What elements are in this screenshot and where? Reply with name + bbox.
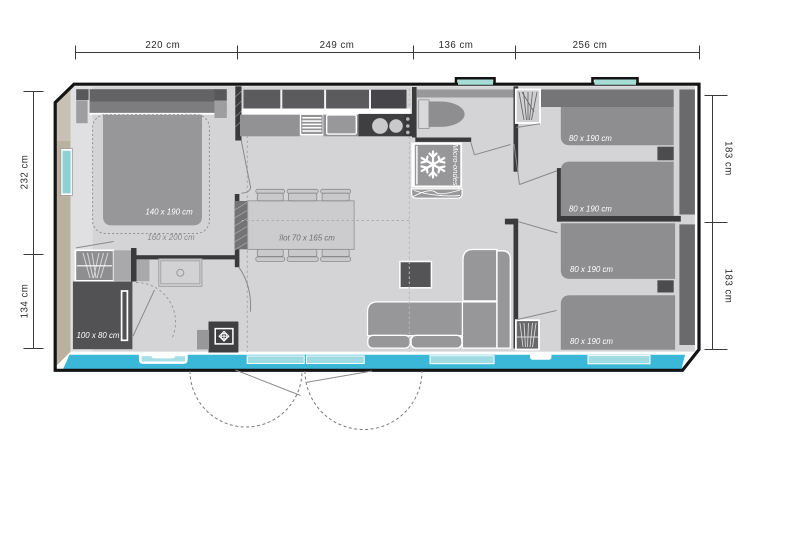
svg-text:220 cm: 220 cm — [145, 40, 180, 51]
svg-text:183 cm: 183 cm — [723, 141, 734, 176]
svg-text:183 cm: 183 cm — [723, 269, 734, 304]
svg-text:249 cm: 249 cm — [320, 40, 355, 51]
svg-text:80 x 190 cm: 80 x 190 cm — [569, 134, 612, 143]
svg-text:80 x 190 cm: 80 x 190 cm — [570, 337, 613, 346]
svg-text:Micro-ondes: Micro-ondes — [451, 144, 460, 186]
svg-text:160 x 200 cm: 160 x 200 cm — [147, 233, 195, 242]
svg-text:140 x 190 cm: 140 x 190 cm — [145, 208, 193, 217]
svg-text:256 cm: 256 cm — [573, 40, 608, 51]
svg-text:232 cm: 232 cm — [20, 155, 31, 190]
svg-text:80 x 190 cm: 80 x 190 cm — [569, 205, 612, 214]
svg-text:îlot 70 x 165 cm: îlot 70 x 165 cm — [279, 234, 335, 243]
svg-text:80 x 190 cm: 80 x 190 cm — [570, 265, 613, 274]
svg-text:136 cm: 136 cm — [439, 40, 474, 51]
svg-text:100 x 80 cm: 100 x 80 cm — [77, 331, 120, 340]
svg-text:134 cm: 134 cm — [20, 284, 31, 319]
